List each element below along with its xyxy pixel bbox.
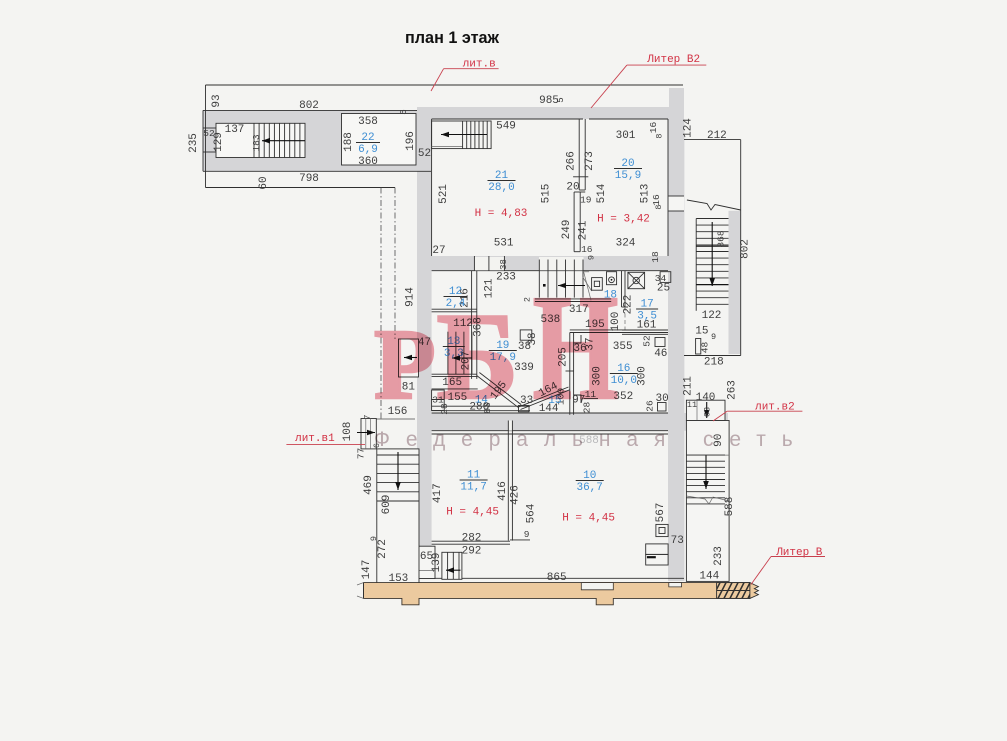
svg-text:144: 144 (699, 571, 719, 583)
svg-text:30: 30 (655, 393, 668, 405)
svg-text:60: 60 (258, 176, 270, 189)
svg-text:139: 139 (431, 553, 443, 573)
svg-text:8: 8 (655, 133, 665, 138)
svg-text:531: 531 (494, 238, 514, 250)
svg-text:11: 11 (687, 400, 697, 410)
svg-text:514: 514 (596, 183, 608, 203)
svg-text:549: 549 (496, 121, 516, 133)
svg-text:124: 124 (683, 118, 695, 138)
svg-text:914: 914 (405, 287, 417, 307)
svg-text:Б: Б (437, 288, 519, 425)
svg-text:292: 292 (462, 546, 482, 558)
svg-text:108: 108 (342, 422, 354, 442)
svg-text:211: 211 (683, 376, 695, 396)
svg-text:11,7: 11,7 (460, 482, 486, 494)
svg-text:129: 129 (213, 132, 225, 152)
svg-text:Н: Н (533, 263, 619, 431)
svg-text:521: 521 (438, 184, 450, 204)
svg-text:567: 567 (655, 503, 667, 523)
svg-text:233: 233 (713, 546, 725, 566)
svg-text:426: 426 (509, 485, 521, 505)
svg-text:802: 802 (740, 239, 752, 259)
svg-text:H = 4,45: H = 4,45 (562, 513, 615, 525)
svg-text:416: 416 (497, 481, 509, 501)
svg-text:273: 273 (584, 151, 596, 171)
svg-text:183: 183 (251, 134, 262, 151)
svg-text:6,9: 6,9 (358, 144, 378, 156)
svg-text:20: 20 (566, 182, 579, 194)
svg-text:140: 140 (696, 392, 716, 404)
svg-text:16: 16 (648, 122, 659, 134)
svg-text:233: 233 (496, 272, 516, 284)
svg-text:868: 868 (716, 230, 727, 247)
svg-text:9: 9 (711, 332, 716, 342)
svg-text:36,7: 36,7 (576, 482, 602, 494)
svg-text:H = 4,83: H = 4,83 (475, 208, 528, 220)
svg-text:5: 5 (556, 97, 566, 102)
svg-text:360: 360 (358, 156, 378, 168)
svg-text:63: 63 (703, 407, 713, 417)
svg-text:9: 9 (524, 529, 530, 540)
svg-text:469: 469 (363, 475, 375, 495)
svg-text:18: 18 (650, 251, 661, 263)
svg-text:222: 222 (622, 295, 634, 315)
svg-text:249: 249 (561, 220, 573, 240)
svg-text:564: 564 (526, 503, 538, 523)
svg-text:77: 77 (356, 448, 367, 459)
svg-text:513: 513 (639, 184, 651, 204)
svg-text:73: 73 (671, 535, 684, 547)
svg-text:515: 515 (541, 184, 553, 204)
svg-text:2: 2 (523, 297, 533, 302)
svg-text:Федеральная сеть: Федеральная сеть (374, 428, 809, 451)
svg-text:16: 16 (581, 244, 593, 255)
svg-text:272: 272 (377, 539, 389, 559)
svg-text:241: 241 (578, 220, 590, 240)
svg-text:147: 147 (361, 560, 373, 580)
svg-text:H = 3,42: H = 3,42 (597, 214, 650, 226)
svg-text:Литер В: Литер В (775, 547, 823, 559)
svg-text:28,0: 28,0 (488, 182, 514, 194)
svg-text:25: 25 (657, 283, 670, 295)
svg-text:9: 9 (587, 255, 597, 260)
svg-text:Литер В2: Литер В2 (646, 54, 700, 66)
svg-text:324: 324 (616, 238, 636, 250)
svg-text:263: 263 (727, 380, 739, 400)
svg-text:7: 7 (363, 414, 373, 419)
svg-text:802: 802 (299, 100, 319, 112)
svg-text:266: 266 (565, 151, 577, 171)
svg-text:218: 218 (704, 357, 724, 369)
svg-text:609: 609 (381, 495, 393, 515)
svg-text:3,5: 3,5 (637, 311, 657, 323)
svg-text:417: 417 (432, 483, 444, 503)
svg-text:16: 16 (651, 194, 662, 206)
svg-text:48: 48 (700, 342, 711, 354)
svg-text:153: 153 (388, 573, 408, 585)
svg-text:358: 358 (358, 116, 378, 128)
svg-text:188: 188 (343, 132, 355, 152)
svg-text:27: 27 (432, 245, 445, 257)
svg-text:план 1 этаж: план 1 этаж (405, 29, 499, 47)
svg-text:137: 137 (225, 124, 245, 136)
svg-text:212: 212 (707, 130, 727, 142)
svg-text:588: 588 (724, 497, 736, 517)
svg-text:865: 865 (547, 572, 567, 584)
svg-text:38: 38 (499, 259, 509, 270)
svg-text:798: 798 (299, 173, 319, 185)
svg-text:15,9: 15,9 (615, 170, 641, 182)
svg-text:301: 301 (616, 130, 636, 142)
svg-text:26: 26 (644, 400, 655, 412)
svg-text:93: 93 (211, 94, 223, 107)
svg-text:46: 46 (654, 348, 667, 360)
svg-text:5: 5 (399, 109, 409, 114)
svg-text:300: 300 (637, 366, 649, 386)
svg-text:52: 52 (642, 335, 653, 347)
svg-text:235: 235 (188, 133, 200, 153)
svg-text:33: 33 (520, 395, 533, 407)
svg-text:H = 4,45: H = 4,45 (446, 507, 499, 519)
svg-text:282: 282 (462, 533, 482, 545)
svg-text:лит.в2: лит.в2 (755, 402, 795, 414)
svg-text:15: 15 (695, 326, 708, 338)
svg-text:52: 52 (418, 148, 431, 160)
svg-text:196: 196 (405, 131, 417, 151)
svg-text:лит.в1: лит.в1 (295, 433, 335, 445)
svg-text:122: 122 (702, 310, 722, 322)
svg-text:8: 8 (654, 204, 664, 209)
svg-text:Р: Р (374, 308, 436, 420)
svg-text:19: 19 (580, 195, 592, 206)
